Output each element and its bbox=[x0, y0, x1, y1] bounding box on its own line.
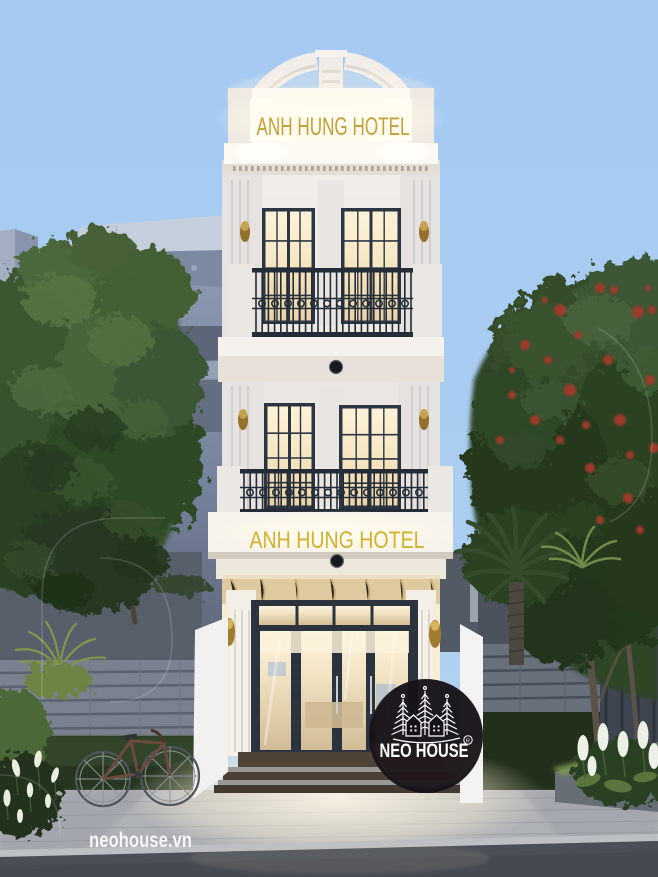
svg-text:neohouse.vn: neohouse.vn bbox=[89, 829, 192, 852]
svg-text:ANH HUNG HOTEL: ANH HUNG HOTEL bbox=[250, 527, 425, 554]
svg-text:ANH HUNG HOTEL: ANH HUNG HOTEL bbox=[257, 113, 410, 141]
svg-text:NEO HOUSE: NEO HOUSE bbox=[380, 741, 469, 762]
svg-text:R: R bbox=[466, 739, 470, 745]
